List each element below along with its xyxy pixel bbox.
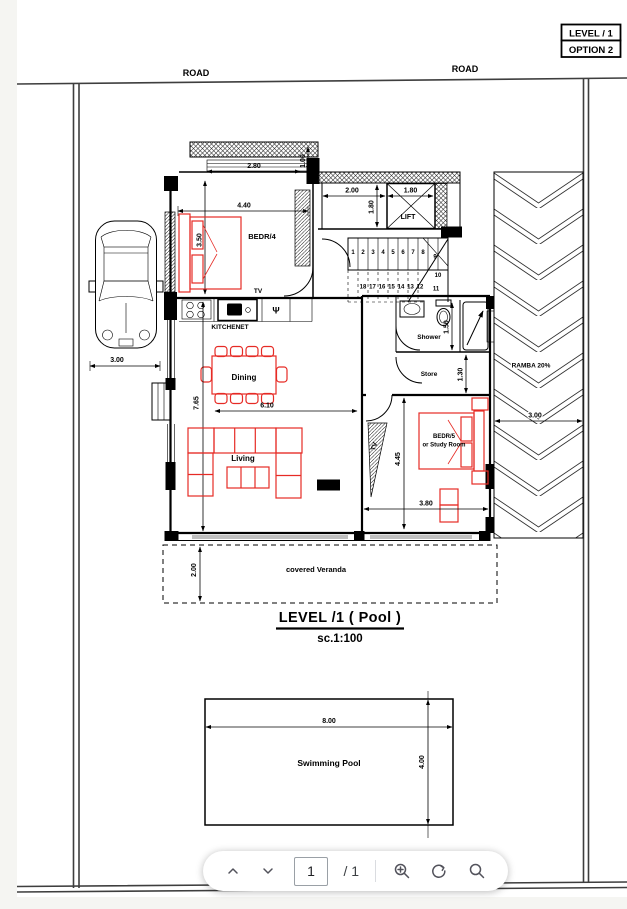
dim-shower: 1.50 [444, 320, 451, 334]
rotate-ccw-icon [430, 862, 448, 880]
stair-num: 14 [398, 285, 405, 291]
floor-plan-drawing: ROAD ROAD LEVEL / 1 OPTION 2 3.00 [0, 0, 627, 909]
dim-bedr4-offset: 1.00 [300, 154, 307, 168]
wet-rooms: Shower Store 1.50 1.30 [362, 296, 495, 533]
stair-num: 15 [388, 285, 395, 291]
stair-num: 3 [371, 250, 375, 256]
bed-double [179, 214, 241, 292]
stair-num: 16 [379, 285, 386, 291]
stair-num: 7 [411, 250, 415, 256]
plant-symbol: Ψ [272, 306, 279, 316]
lift-shaft: LIFT 2.00 1.80 1.80 [318, 172, 462, 238]
dim-bedr4-window: 2.80 [247, 163, 261, 170]
dim-bedr5-width: 3.80 [419, 501, 433, 508]
swimming-pool: Swimming Pool 8.00 4.00 [205, 691, 453, 838]
room-label-ramp: RAMBA 20% [512, 363, 551, 370]
level-label: LEVEL / 1 [569, 29, 613, 40]
search-icon [468, 862, 486, 880]
room-label-bedr4: BEDR/4 [248, 232, 276, 241]
stair-num: 8 [421, 250, 425, 256]
staircase: 1 2 3 4 5 6 7 8 9 10 11 18 17 16 15 14 1… [322, 229, 448, 302]
page-number-input[interactable] [294, 857, 328, 886]
veranda: covered Veranda 2.00 [163, 545, 497, 603]
zoom-in-icon [393, 862, 411, 880]
dim-parking-width: 3.00 [110, 357, 124, 364]
dim-bedr4-width: 4.40 [237, 203, 251, 210]
pdf-viewer-canvas: ROAD ROAD LEVEL / 1 OPTION 2 3.00 [0, 0, 627, 909]
page-total-label: / 1 [343, 863, 359, 879]
kitchenette: Ψ KITCHENET [170, 298, 362, 331]
room-label-shower: Shower [417, 334, 441, 341]
toolbar-divider [375, 860, 376, 882]
living-area: Living [188, 428, 340, 498]
stair-num: 11 [433, 287, 440, 293]
rotate-button[interactable] [428, 860, 450, 882]
dim-pool-depth: 4.00 [419, 755, 426, 769]
room-label-bedr5-sub: or Study Room [423, 443, 466, 449]
dining-area: Dining 7.65 6.10 [194, 302, 358, 531]
dim-pool-width: 8.00 [322, 718, 336, 725]
dim-living-height: 7.65 [194, 396, 201, 410]
dim-ramp: 3.00 [528, 413, 542, 420]
bedroom-4: 2.80 1.00 4.40 3.50 BEDR/4 TV [164, 142, 320, 533]
dim-store: 1.30 [458, 368, 465, 382]
bedroom-5: BEDR/5 or Study Room 4.45 3.80 TV [364, 398, 488, 529]
car-top-view: 3.00 [89, 221, 163, 371]
chevron-down-icon [260, 863, 276, 879]
tv-label-bedr4: TV [254, 288, 263, 295]
stair-num: 2 [361, 250, 365, 256]
room-label-living: Living [231, 454, 255, 463]
room-label-kitchenet: KITCHENET [211, 324, 248, 331]
chevron-up-icon [225, 863, 241, 879]
stair-num: 13 [407, 285, 414, 291]
stair-num: 1 [351, 250, 355, 256]
dim-bedr5-height: 4.45 [395, 452, 402, 466]
zoom-in-button[interactable] [391, 860, 413, 882]
drawing-title: LEVEL /1 ( Pool ) sc.1:100 [276, 610, 404, 645]
dim-lift-width: 1.80 [404, 188, 418, 195]
stair-num: 5 [391, 250, 395, 256]
room-label-dining: Dining [232, 373, 257, 382]
dim-lift-depth: 1.80 [369, 200, 376, 214]
room-label-bedr5: BEDR/5 [433, 434, 456, 440]
stair-num: 10 [435, 273, 442, 279]
plan-scale: sc.1:100 [317, 633, 362, 645]
road-label-left: ROAD [183, 68, 210, 78]
room-label-store: Store [421, 371, 438, 378]
bed-double [419, 398, 488, 484]
stair-num: 17 [369, 285, 376, 291]
ramp: RAMBA 20% 3.00 [494, 172, 583, 538]
pdf-toolbar: / 1 [203, 851, 508, 891]
room-label-lift: LIFT [401, 214, 416, 221]
room-label-pool: Swimming Pool [297, 758, 360, 768]
road-label-right: ROAD [452, 64, 479, 74]
dim-stair-width: 2.00 [345, 188, 359, 195]
previous-page-button[interactable] [223, 861, 243, 881]
next-page-button[interactable] [258, 861, 278, 881]
option-label: OPTION 2 [569, 45, 613, 56]
plan-title: LEVEL /1 ( Pool ) [279, 610, 402, 626]
stair-num: 12 [417, 285, 424, 291]
stair-num: 18 [360, 285, 367, 291]
dim-veranda: 2.00 [191, 563, 198, 577]
room-label-veranda: covered Veranda [286, 565, 347, 574]
dim-living-width: 6.10 [260, 403, 274, 410]
sheet-label-box: LEVEL / 1 OPTION 2 [562, 25, 621, 58]
stair-num: 4 [381, 250, 385, 256]
search-button[interactable] [466, 860, 488, 882]
stair-num: 6 [401, 250, 405, 256]
